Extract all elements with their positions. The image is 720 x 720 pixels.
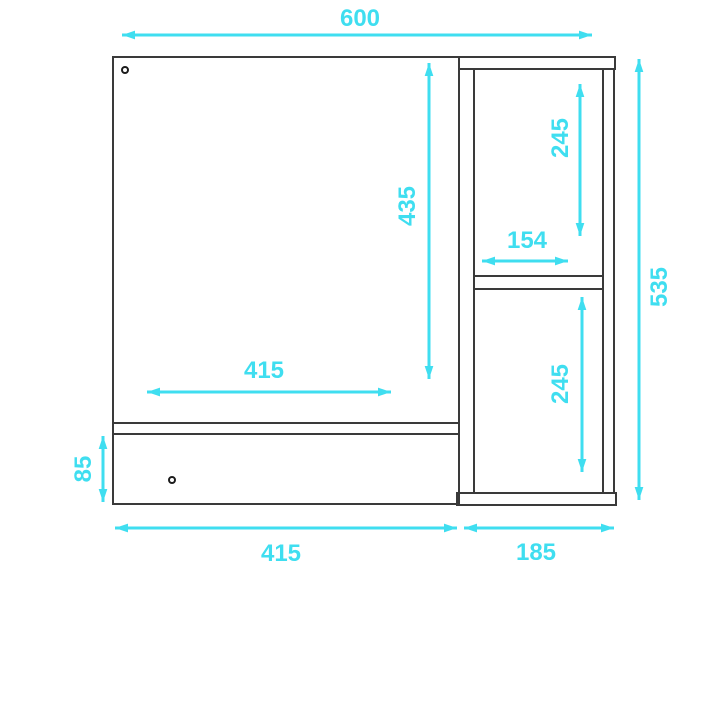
side-unit-top-board	[458, 56, 616, 70]
dim-label-door-height: 435	[396, 186, 420, 226]
side-unit-middle-shelf	[473, 275, 604, 290]
dim-label-overall-width: 600	[340, 7, 380, 31]
dim-label-cabinet-bottom-width: 415	[261, 542, 301, 566]
cabinet-technical-drawing: 600 435 415 245 154 245 535 85 415 185	[0, 0, 720, 720]
dim-label-side-opening-top-height: 245	[549, 118, 573, 158]
cabinet-body-outline	[112, 56, 460, 505]
drawer-handle-hole	[168, 476, 176, 484]
dim-label-side-opening-bottom-height: 245	[549, 364, 573, 404]
door-drawer-divider-rail	[114, 422, 458, 435]
dim-label-door-width: 415	[244, 359, 284, 383]
dim-label-drawer-height: 85	[72, 456, 96, 483]
side-unit-bottom-board	[456, 492, 617, 506]
door-hinge-hole	[121, 66, 129, 74]
dim-label-side-unit-width: 185	[516, 541, 556, 565]
dim-label-side-opening-width: 154	[507, 229, 547, 253]
dim-label-overall-height: 535	[648, 267, 672, 307]
